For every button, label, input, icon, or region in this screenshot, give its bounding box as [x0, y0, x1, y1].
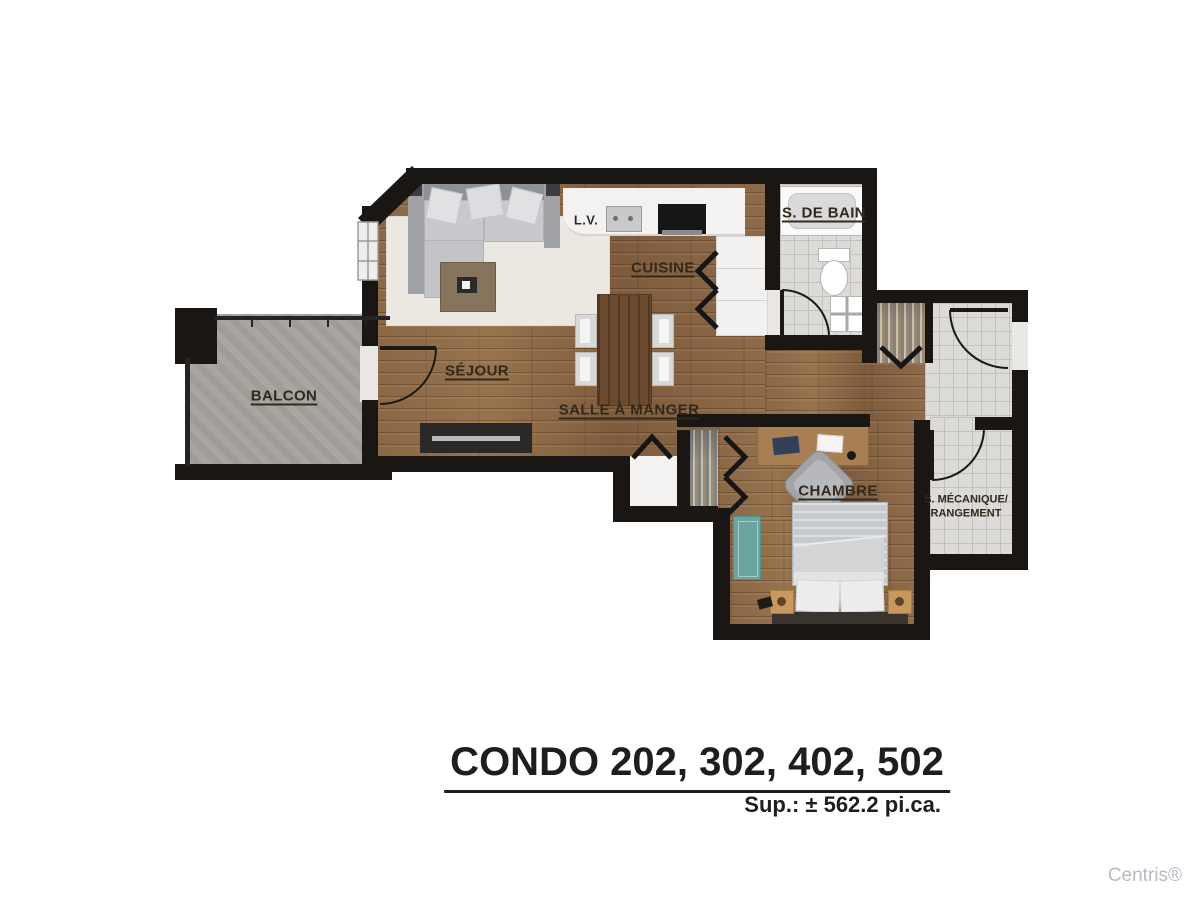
balcony-label: BALCON: [251, 388, 318, 405]
bifold-door-icons: [633, 252, 921, 517]
bathroom-door: [782, 290, 829, 337]
bedroom-closet-bifold-icon: [725, 437, 745, 477]
bathroom-label: S. DE BAIN: [782, 205, 866, 222]
pantry-bifold-icon: [698, 290, 717, 328]
mechanical-room-label: S. MÉCANIQUE/ RANGEMENT: [906, 493, 1026, 522]
hall-closet-bifold-icon: [633, 437, 671, 458]
dishwasher-label: L.V.: [574, 213, 598, 228]
entry-door: [950, 310, 1008, 368]
bedroom-closet-bifold-icon: [725, 477, 745, 517]
plan-title: CONDO 202, 302, 402, 502: [444, 740, 950, 793]
kitchen-label: CUISINE: [631, 260, 695, 277]
bedroom-label: CHAMBRE: [798, 483, 877, 500]
centris-watermark: Centris®: [1108, 865, 1182, 887]
balcony-railing: [214, 318, 390, 327]
plan-area: Sup.: ± 562.2 pi.ca.: [744, 792, 941, 818]
living-room-label: SÉJOUR: [445, 363, 509, 380]
balcony-door: [380, 348, 436, 404]
living-room-window: [358, 222, 378, 280]
pantry-bifold-icon: [698, 252, 717, 290]
entry-closet-bifold-icon: [881, 347, 921, 366]
dining-room-label: SALLE À MANGER: [559, 402, 700, 419]
mechanical-room-door: [932, 428, 984, 480]
floor-plan: BALCON SÉJOUR SALLE À MANGER CUISINE S. …: [0, 0, 1200, 900]
